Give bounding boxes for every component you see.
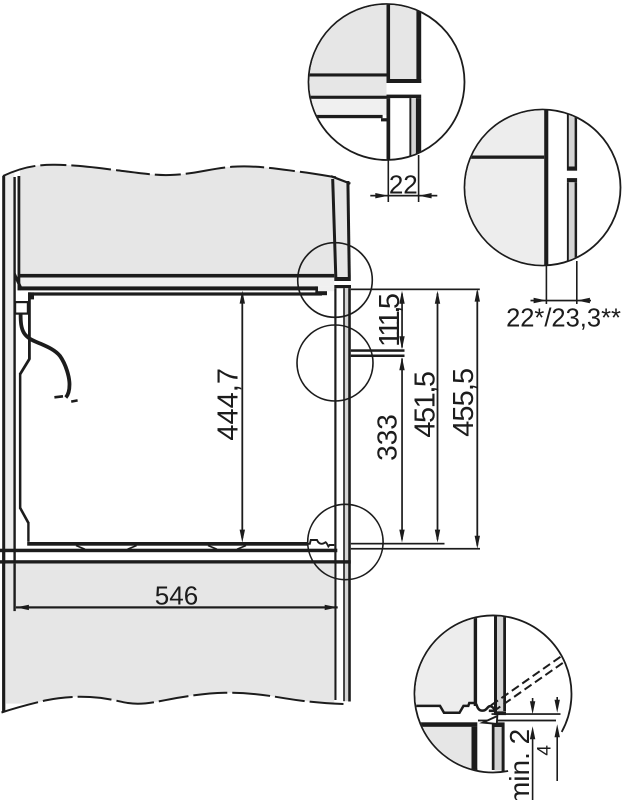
svg-text:22*/23,3**: 22*/23,3** bbox=[506, 305, 621, 333]
svg-text:4: 4 bbox=[535, 745, 556, 756]
svg-text:min. 2: min. 2 bbox=[504, 729, 535, 800]
svg-text:546: 546 bbox=[155, 581, 198, 611]
svg-text:455,5: 455,5 bbox=[448, 368, 480, 437]
svg-text:444,7: 444,7 bbox=[213, 368, 245, 441]
svg-text:22: 22 bbox=[389, 170, 418, 200]
svg-text:111,5: 111,5 bbox=[374, 293, 406, 347]
svg-text:451,5: 451,5 bbox=[410, 371, 442, 438]
svg-text:333: 333 bbox=[372, 414, 403, 461]
